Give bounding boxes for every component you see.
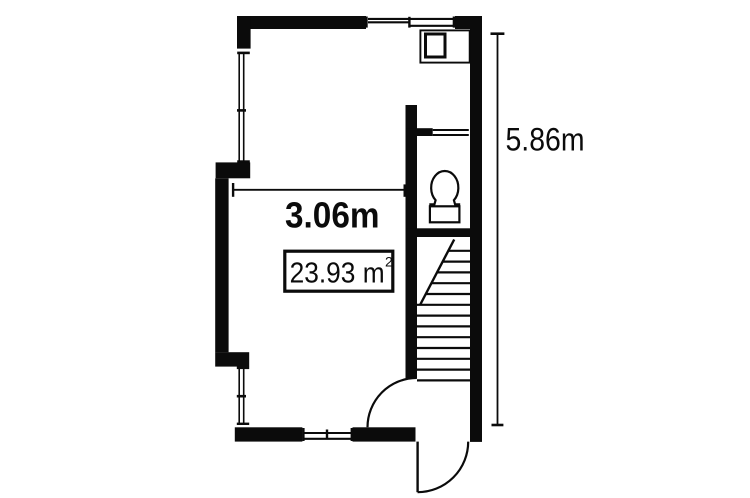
svg-text:3.06m: 3.06m (285, 194, 380, 235)
svg-text:2: 2 (385, 254, 393, 270)
svg-text:23.93 m: 23.93 m (290, 257, 385, 289)
svg-text:5.86m: 5.86m (506, 122, 585, 158)
